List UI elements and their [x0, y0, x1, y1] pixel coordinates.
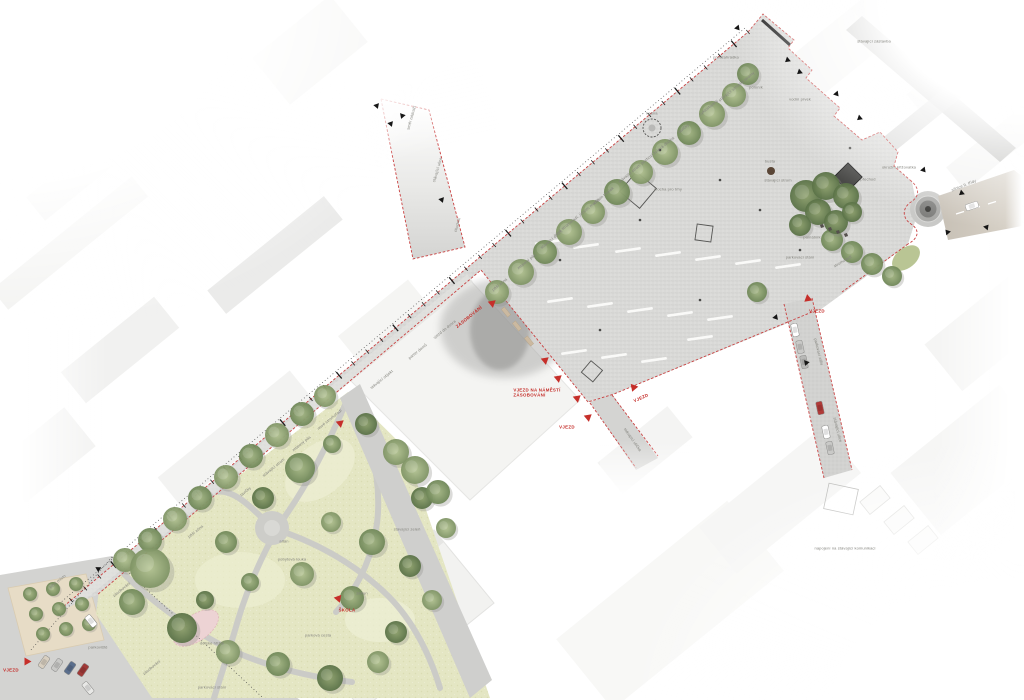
light-pole	[849, 147, 852, 150]
site-plan-svg	[0, 0, 1024, 700]
road-east	[938, 170, 1022, 240]
branch-street-northwest	[381, 99, 465, 259]
bust-point	[767, 167, 775, 175]
light-pole	[599, 329, 602, 332]
site-plan-canvas: ZÁSOBOVÁNÍVJEZD NA NÁMĚSTÍ ZÁSOBOVÁNÍVJE…	[0, 0, 1024, 700]
light-pole	[559, 259, 562, 262]
light-pole	[659, 149, 662, 152]
light-pole	[799, 249, 802, 252]
light-pole	[699, 299, 702, 302]
light-pole	[759, 209, 762, 212]
light-pole	[639, 219, 642, 222]
light-pole	[719, 179, 722, 182]
